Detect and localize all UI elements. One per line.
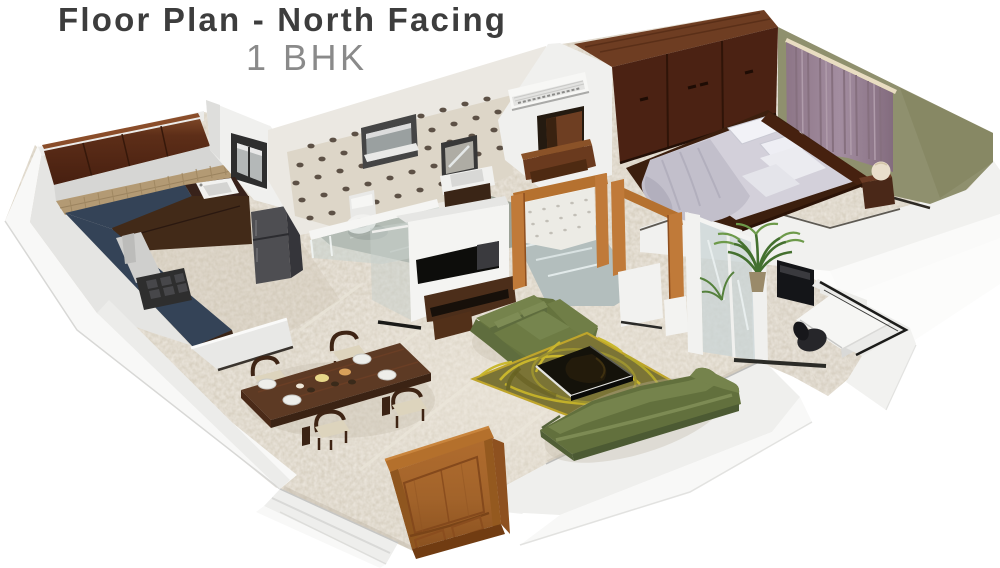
svg-text:Floor Plan - North Facing: Floor Plan - North Facing [58,1,507,38]
svg-text:1 BHK: 1 BHK [246,37,368,78]
